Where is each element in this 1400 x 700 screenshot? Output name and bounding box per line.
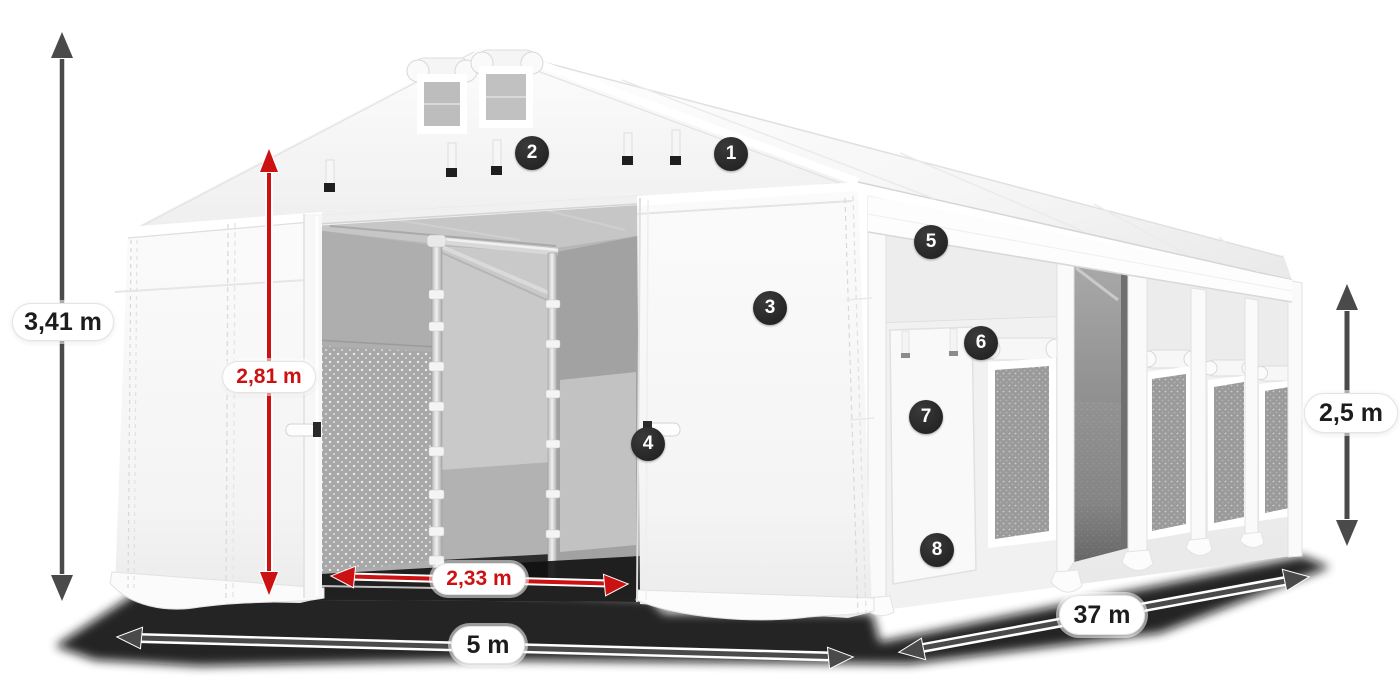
total-height-label: 3,41 m [12, 303, 114, 341]
tent-illustration [0, 0, 1400, 700]
callout-badge-5[interactable]: 5 [914, 225, 948, 259]
tent-dimension-diagram: 1 2 3 4 5 6 7 8 3,41 m 2,81 m 2,33 m 5 m… [0, 0, 1400, 700]
front-left-wall [110, 212, 324, 609]
door-height-label: 2,81 m [222, 361, 316, 393]
length-label: 37 m [1059, 595, 1145, 635]
callout-badge-3[interactable]: 3 [753, 291, 787, 325]
callout-badge-4[interactable]: 4 [631, 427, 665, 461]
front-right-wall [636, 182, 874, 620]
callout-badge-6[interactable]: 6 [964, 326, 998, 360]
side-height-label: 2,5 m [1304, 393, 1398, 433]
front-width-label: 5 m [451, 626, 525, 664]
callout-badge-1[interactable]: 1 [714, 137, 748, 171]
door-width-label: 2,33 m [432, 563, 526, 595]
callout-badge-7[interactable]: 7 [909, 400, 943, 434]
callout-badge-2[interactable]: 2 [515, 136, 549, 170]
callout-badge-8[interactable]: 8 [920, 533, 954, 567]
left-door-handle [286, 422, 321, 437]
tent-interior [316, 188, 643, 602]
